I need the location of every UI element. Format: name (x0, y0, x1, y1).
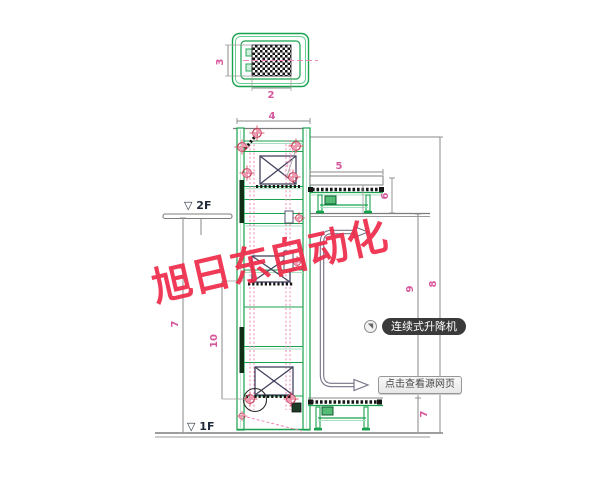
dim-detail-width: 2 (268, 90, 275, 101)
dim-left: 7 10 (170, 218, 244, 433)
cad-drawing: 3 2 4 (0, 0, 600, 488)
cursor-icon[interactable]: ◥ (364, 320, 377, 333)
conveyor-1f (308, 398, 383, 431)
svg-text:4: 4 (269, 111, 276, 122)
floor-2f-label: ▽ 2F (184, 199, 211, 212)
detail-tab-top (246, 49, 252, 56)
detail-view: 3 2 (215, 34, 318, 102)
conveyor-1f-motor (322, 407, 333, 415)
floor-2f: ▽ 2F (163, 199, 430, 235)
detail-tab-bottom (246, 64, 252, 71)
drawing-canvas: 3 2 4 (0, 0, 600, 488)
conveyor-2f-leg (366, 195, 370, 211)
guide-rail-bar-lower (240, 327, 245, 373)
floor-1f-label: ▽ 1F (187, 420, 214, 433)
dim-right-mid: 9 (405, 285, 416, 292)
position-markers (235, 126, 306, 422)
conveyor-2f (308, 176, 384, 214)
dim-lift-height: 10 (209, 334, 220, 348)
floor-1f: ▽ 1F (155, 420, 443, 437)
dim-right-full: 8 (428, 280, 439, 287)
product-tag-row: ◥ 连续式升降机 (364, 318, 466, 335)
conveyor-2f-motor (325, 196, 336, 204)
chain-lines (250, 140, 290, 410)
carrier-platforms (252, 156, 296, 395)
drive-motor-block (292, 403, 301, 412)
dim-conveyor-height: 6 (380, 192, 391, 199)
guide-rail-bar-upper (240, 180, 245, 223)
dim-total-height: 7 (170, 320, 181, 327)
carrier-bracket-upper (285, 211, 293, 223)
dim-conveyor-length: 5 (336, 161, 343, 172)
dim-detail-height: 3 (215, 58, 226, 65)
conveyor-2f-leg (318, 195, 322, 211)
dim-shaft-width: 4 (237, 111, 310, 124)
view-source-button[interactable]: 点击查看源网页 (378, 376, 462, 394)
shaft-cross-members (244, 141, 303, 396)
product-tag[interactable]: 连续式升降机 (382, 318, 466, 335)
carrier-bracket-mid (284, 251, 293, 270)
arrowhead-top (354, 227, 368, 238)
arrowhead-bottom (354, 380, 368, 391)
flow-arrows (322, 227, 368, 391)
dim-bottom-conveyor-height: 7 (419, 410, 430, 417)
